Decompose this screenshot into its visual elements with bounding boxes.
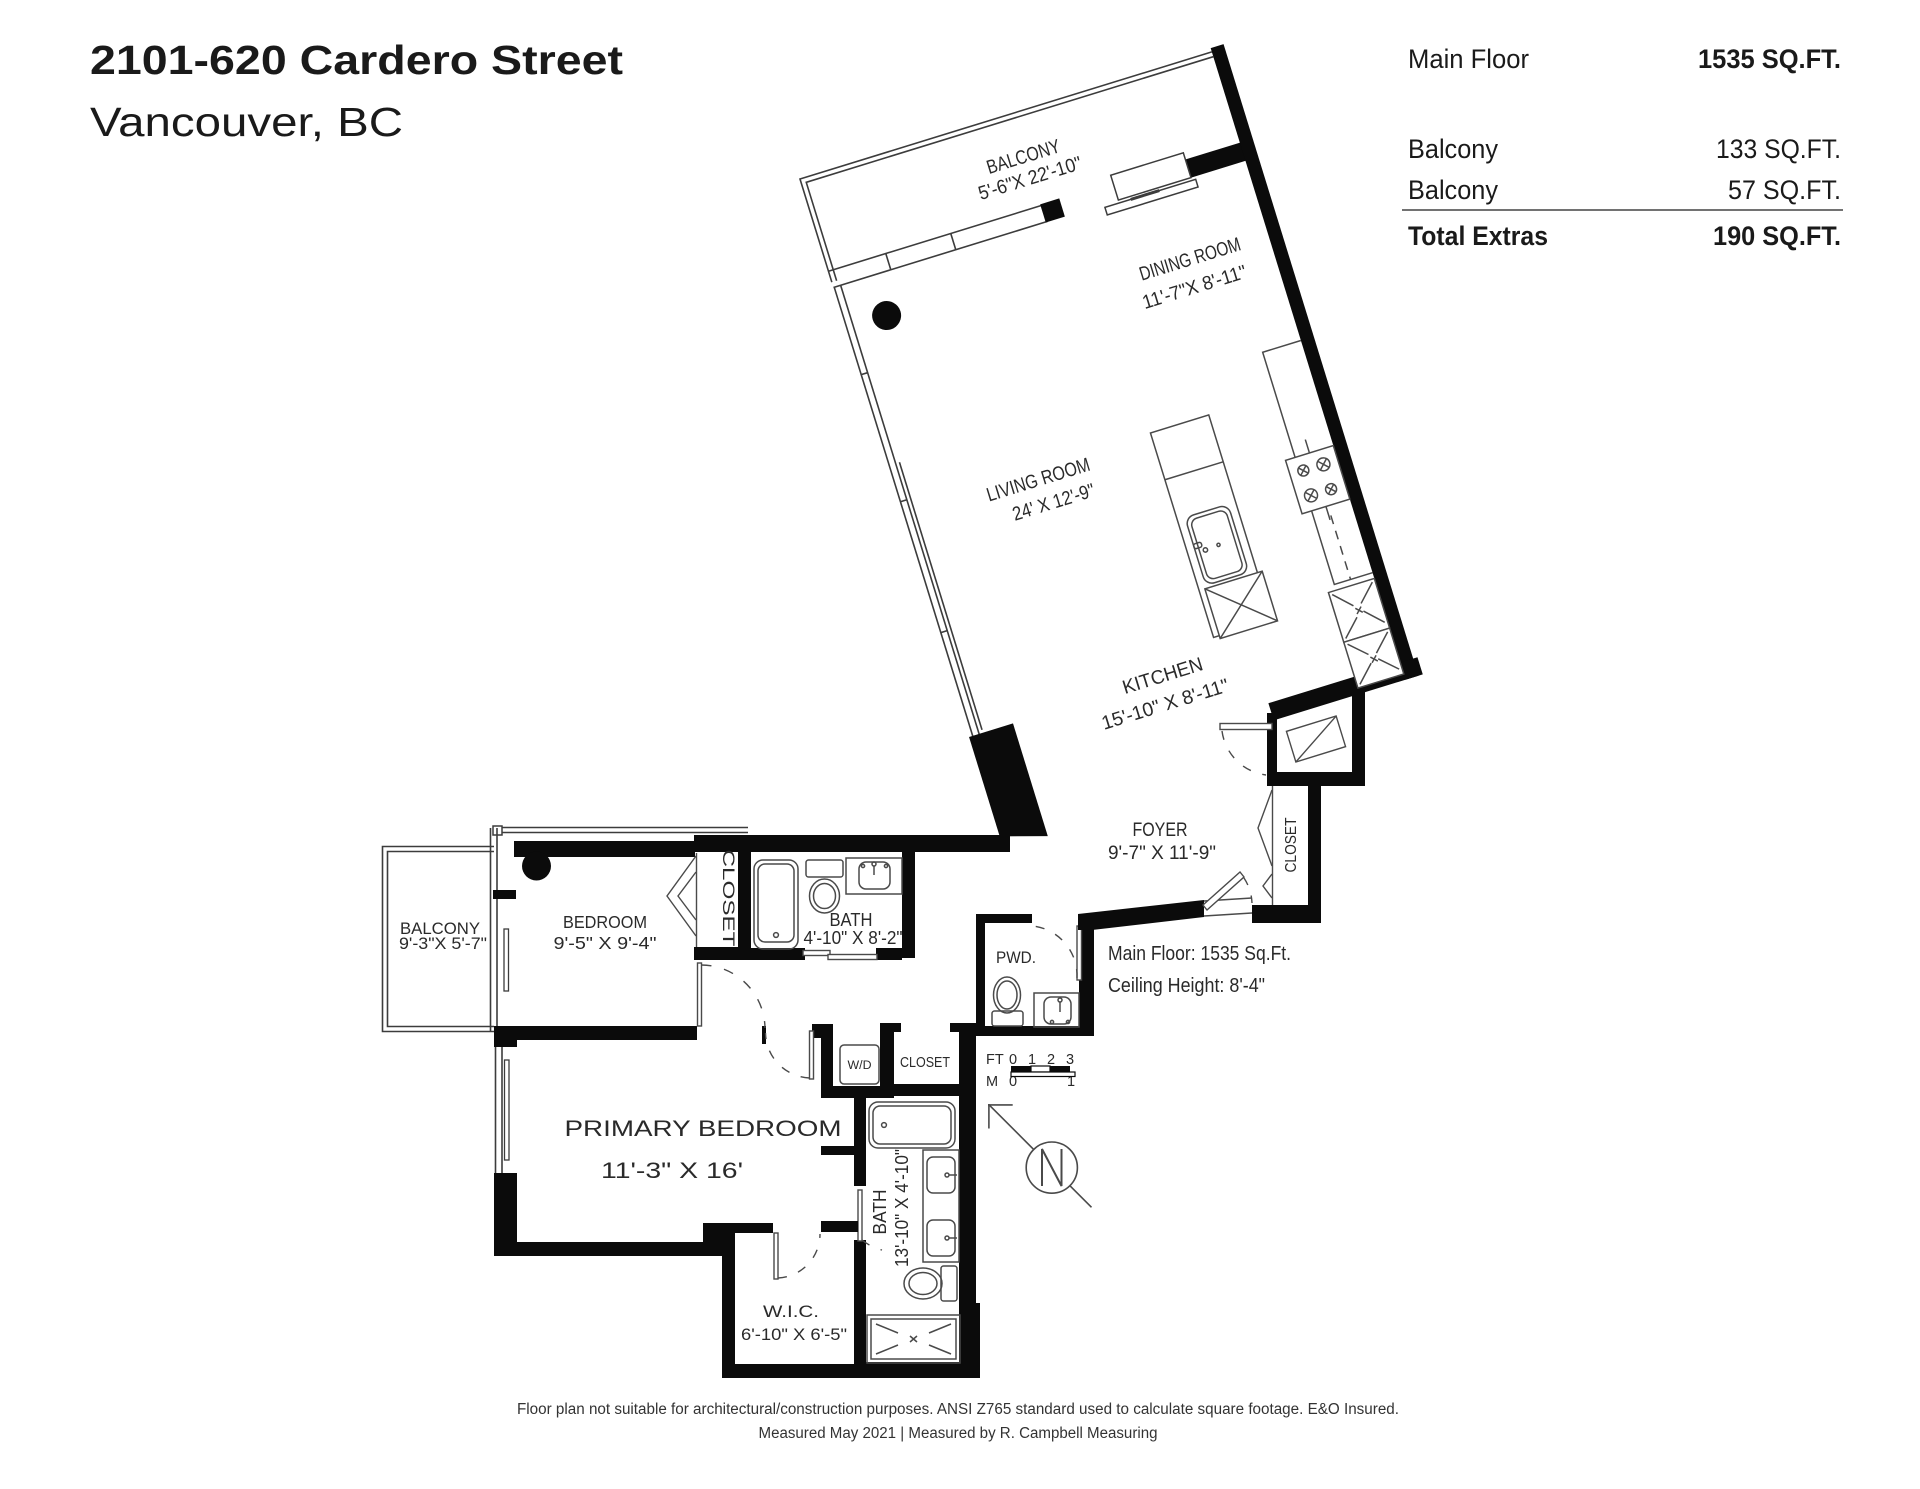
svg-text:6'-10" X 6'-5": 6'-10" X 6'-5" bbox=[741, 1325, 847, 1344]
svg-text:PRIMARY BEDROOM: PRIMARY BEDROOM bbox=[565, 1116, 842, 1141]
svg-text:13'-10" X 4'-10": 13'-10" X 4'-10" bbox=[891, 1149, 912, 1267]
svg-text:57 SQ.FT.: 57 SQ.FT. bbox=[1728, 175, 1841, 205]
svg-text:CLOSET: CLOSET bbox=[900, 1054, 950, 1071]
svg-text:PWD.: PWD. bbox=[996, 949, 1036, 967]
svg-text:3: 3 bbox=[1066, 1052, 1074, 1068]
svg-text:Total Extras: Total Extras bbox=[1408, 221, 1548, 251]
svg-text:Vancouver, BC: Vancouver, BC bbox=[90, 99, 403, 145]
svg-text:1535 SQ.FT.: 1535 SQ.FT. bbox=[1698, 44, 1841, 74]
svg-text:W.I.C.: W.I.C. bbox=[763, 1302, 819, 1321]
svg-text:Ceiling Height: 8'-4": Ceiling Height: 8'-4" bbox=[1108, 975, 1265, 997]
svg-text:133 SQ.FT.: 133 SQ.FT. bbox=[1716, 134, 1841, 164]
svg-text:Balcony: Balcony bbox=[1408, 175, 1498, 205]
svg-text:Main Floor: 1535 Sq.Ft.: Main Floor: 1535 Sq.Ft. bbox=[1108, 943, 1291, 965]
svg-text:Floor plan not suitable for ar: Floor plan not suitable for architectura… bbox=[517, 1401, 1399, 1418]
svg-text:Balcony: Balcony bbox=[1408, 134, 1498, 164]
svg-text:Main Floor: Main Floor bbox=[1408, 44, 1529, 74]
svg-text:9'-5" X 9'-4": 9'-5" X 9'-4" bbox=[554, 933, 657, 953]
svg-text:190 SQ.FT.: 190 SQ.FT. bbox=[1713, 221, 1841, 251]
svg-text:BEDROOM: BEDROOM bbox=[563, 912, 647, 932]
svg-text:2101-620 Cardero Street: 2101-620 Cardero Street bbox=[90, 37, 623, 83]
svg-text:CLOSET: CLOSET bbox=[719, 850, 738, 947]
svg-text:FOYER: FOYER bbox=[1133, 820, 1188, 841]
svg-text:M: M bbox=[986, 1074, 998, 1090]
svg-text:9'-7" X 11'-9": 9'-7" X 11'-9" bbox=[1108, 843, 1216, 864]
svg-text:BATH: BATH bbox=[869, 1190, 890, 1235]
svg-text:CLOSET: CLOSET bbox=[1283, 817, 1300, 872]
svg-text:0: 0 bbox=[1009, 1052, 1017, 1068]
svg-text:9'-3"X 5'-7": 9'-3"X 5'-7" bbox=[399, 934, 487, 953]
svg-text:4'-10" X 8'-2": 4'-10" X 8'-2" bbox=[804, 927, 903, 948]
svg-text:W/D: W/D bbox=[848, 1060, 872, 1072]
svg-text:FT: FT bbox=[986, 1052, 1004, 1068]
svg-text:Measured May 2021 | Measured b: Measured May 2021 | Measured by R. Campb… bbox=[759, 1425, 1158, 1442]
svg-text:11'-3" X 16': 11'-3" X 16' bbox=[601, 1158, 743, 1183]
